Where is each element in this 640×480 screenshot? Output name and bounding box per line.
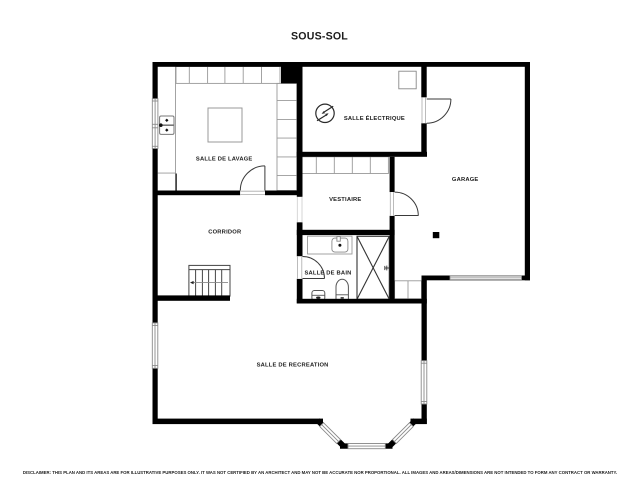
svg-text:SALLE ÉLECTRIQUE: SALLE ÉLECTRIQUE [344,114,405,122]
svg-text:SOUS-SOL: SOUS-SOL [291,31,348,43]
svg-text:VESTIAIRE: VESTIAIRE [329,197,361,203]
svg-text:SALLE DE BAIN: SALLE DE BAIN [304,270,351,276]
svg-text:GARAGE: GARAGE [452,177,479,183]
svg-text:SALLE DE RECREATION: SALLE DE RECREATION [257,363,329,369]
svg-text:DISCLAIMER: THIS PLAN AND ITS: DISCLAIMER: THIS PLAN AND ITS AREAS ARE … [23,470,617,475]
svg-text:SALLE DE LAVAGE: SALLE DE LAVAGE [196,157,253,163]
svg-text:CORRIDOR: CORRIDOR [208,230,242,236]
